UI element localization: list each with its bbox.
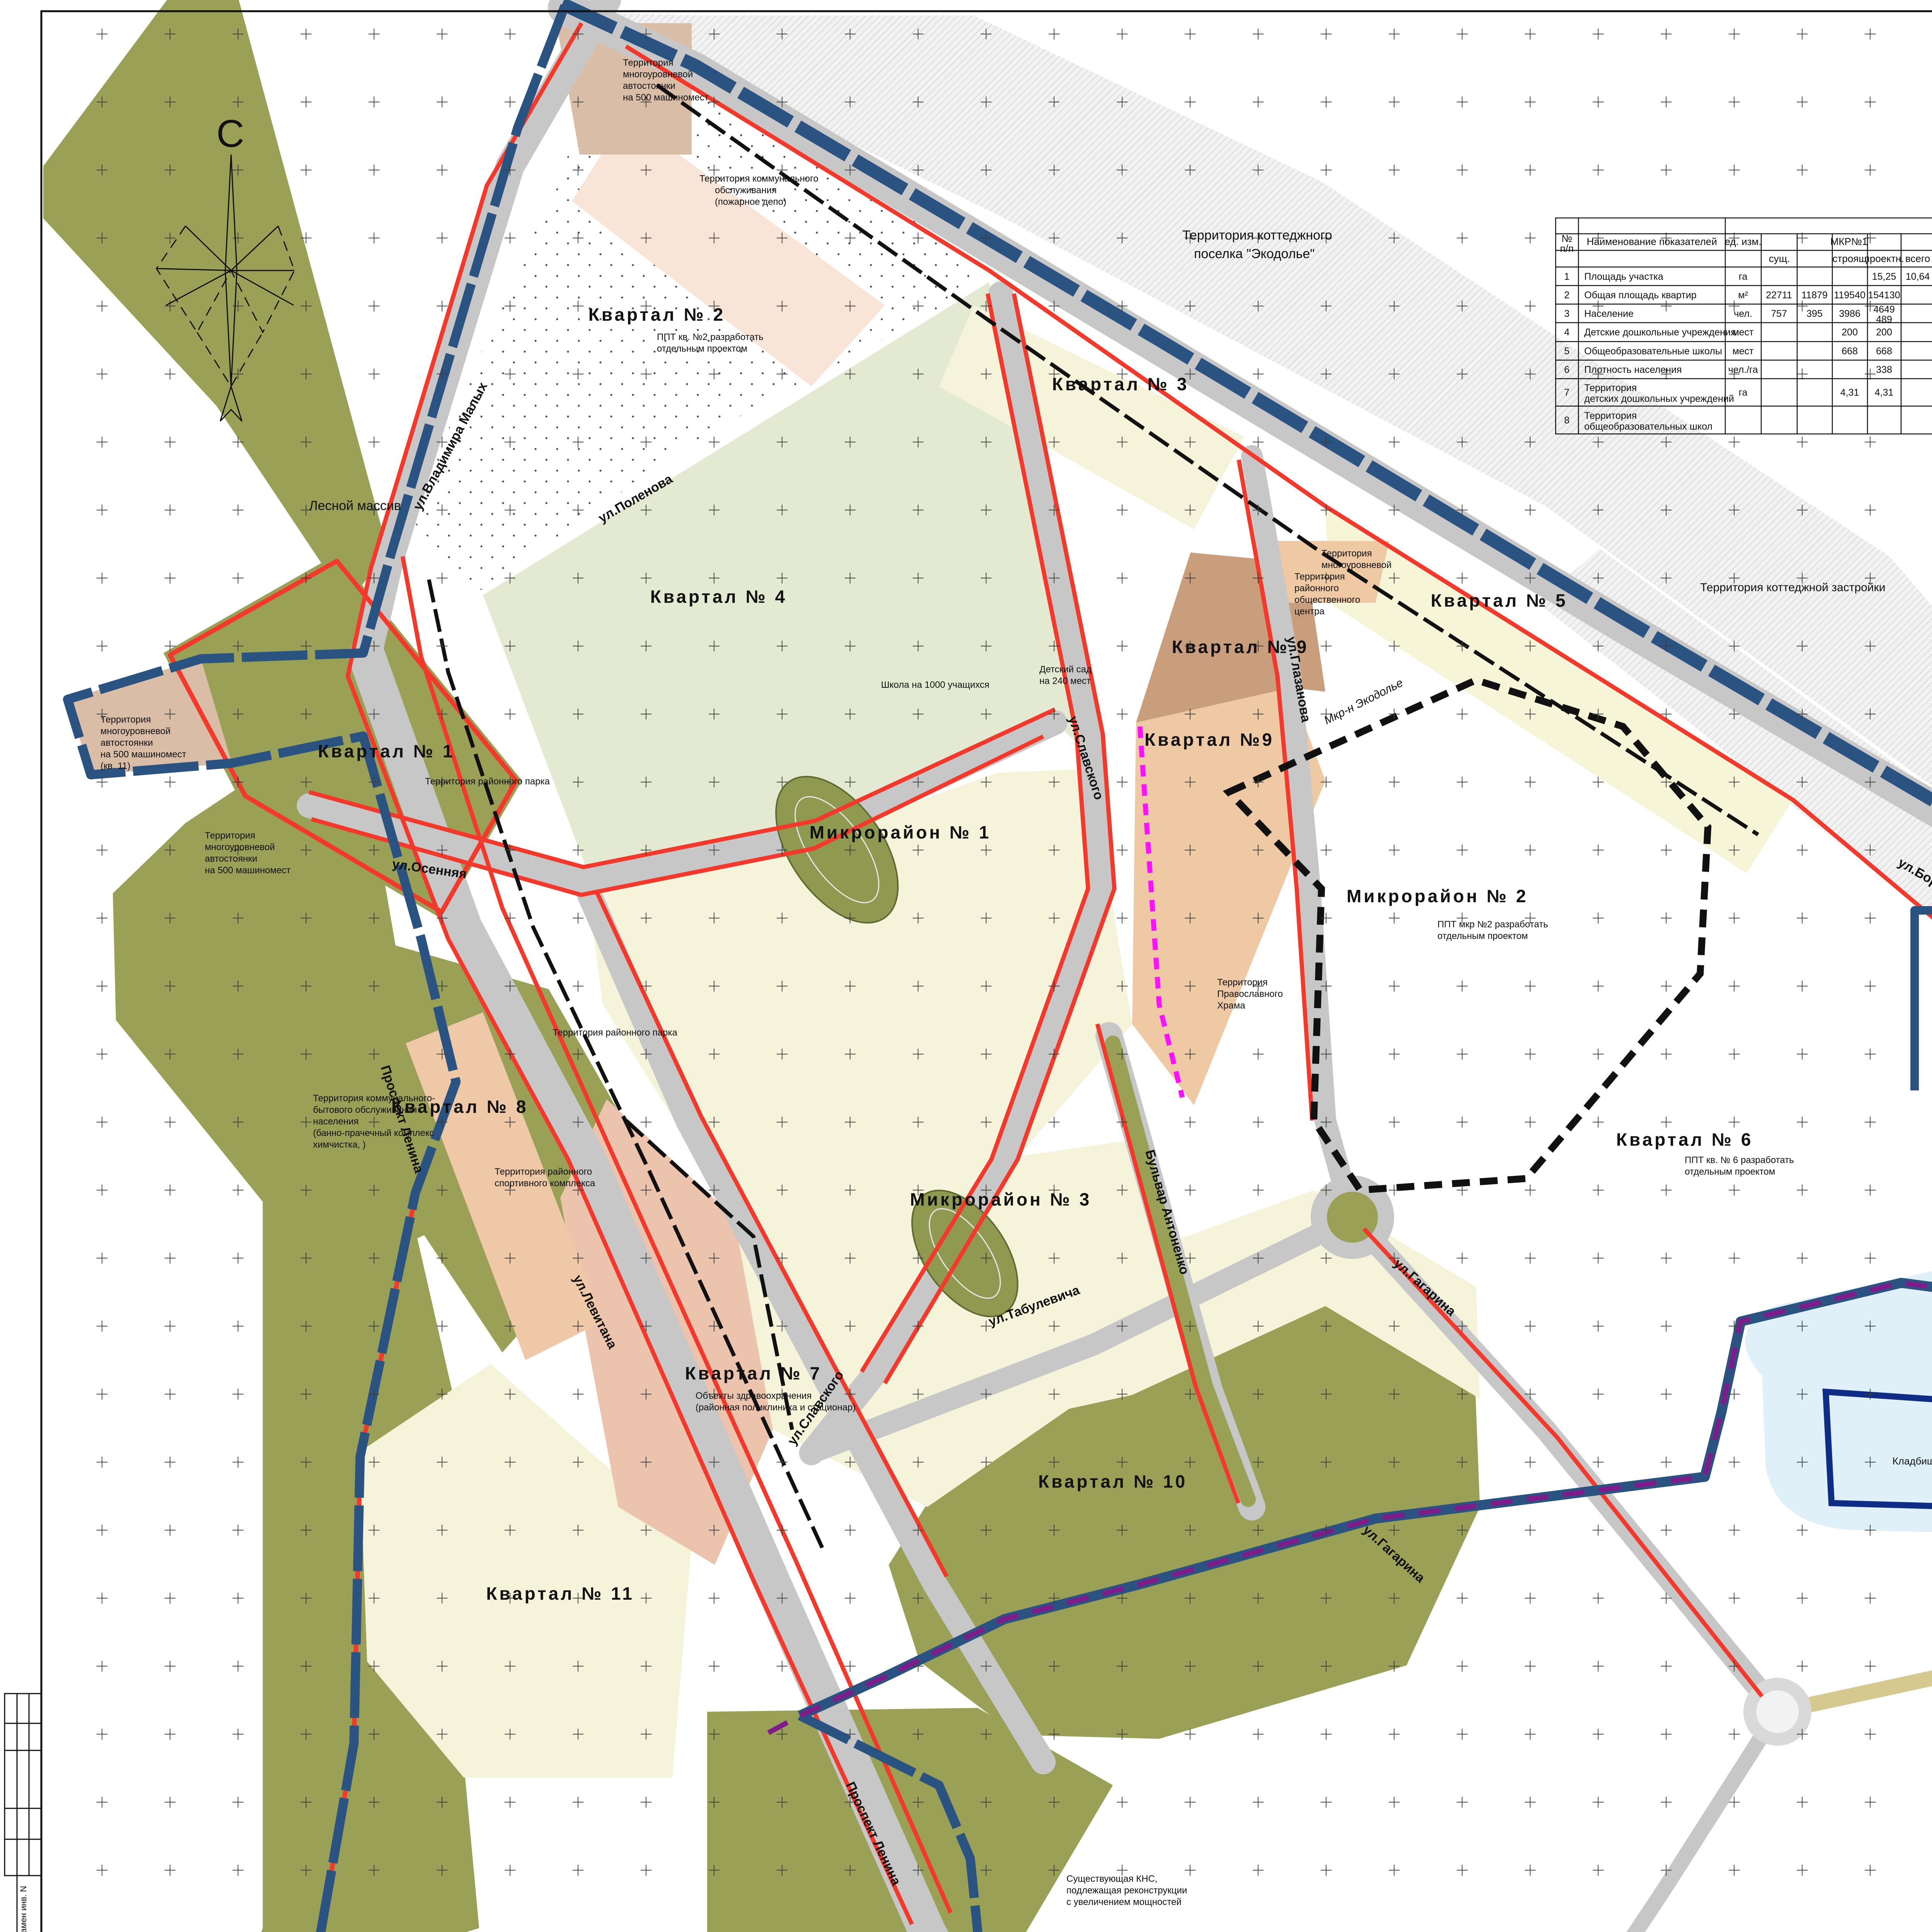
svg-text:районного: районного [1294,583,1339,594]
svg-text:спортивного комплекса: спортивного комплекса [495,1178,595,1189]
svg-text:многоуровневой: многоуровневой [205,842,275,852]
svg-text:(банно-прачечный комплекс: (банно-прачечный комплекс [313,1128,434,1138]
svg-text:668: 668 [1842,346,1858,357]
svg-text:С: С [216,112,244,155]
svg-text:Лесной массив: Лесной массив [309,498,401,513]
svg-text:15,25: 15,25 [1872,271,1896,282]
svg-text:119540: 119540 [1834,290,1866,301]
svg-text:Территория коттеджного: Территория коттеджного [1182,228,1332,243]
svg-text:на 500 машиномест: на 500 машиномест [205,865,291,876]
svg-text:Территория районного парка: Территория районного парка [425,776,550,787]
svg-text:395: 395 [1806,308,1823,319]
svg-text:200: 200 [1842,327,1858,338]
svg-text:Взамен инв. N: Взамен инв. N [19,1886,28,1932]
svg-text:489: 489 [1876,314,1892,325]
svg-text:мест: мест [1732,327,1754,338]
svg-text:Квартал № 3: Квартал № 3 [1052,374,1189,394]
svg-text:4649: 4649 [1873,304,1895,315]
svg-text:автостоянки: автостоянки [100,738,153,748]
svg-text:сущ.: сущ. [1769,253,1790,264]
svg-text:7: 7 [1564,387,1570,398]
svg-text:м²: м² [1738,290,1748,301]
svg-text:Общая площадь квартир: Общая площадь квартир [1584,290,1697,301]
svg-text:Территория: Территория [1584,410,1637,421]
svg-text:338: 338 [1876,364,1892,375]
svg-text:(кв. 11): (кв. 11) [100,761,130,771]
svg-text:Территория: Территория [205,830,255,841]
svg-text:автостоянки: автостоянки [205,854,257,864]
svg-text:4,31: 4,31 [1875,387,1894,398]
svg-text:5: 5 [1564,346,1570,357]
svg-text:га: га [1739,271,1748,282]
svg-text:757: 757 [1771,308,1787,319]
svg-text:11879: 11879 [1801,290,1828,301]
svg-text:мест: мест [1732,346,1754,357]
svg-text:(районная поликлиника и стацио: (районная поликлиника и стационар) [696,1402,856,1413]
svg-text:бытового обслуживания: бытового обслуживания [313,1105,417,1115]
svg-text:Территория: Территория [100,714,151,725]
svg-text:Квартал № 6: Квартал № 6 [1616,1129,1753,1150]
svg-text:Квартал № 1: Квартал № 1 [318,741,455,761]
svg-text:п/п: п/п [1560,243,1573,254]
svg-text:населения: населения [313,1116,359,1127]
svg-text:154130: 154130 [1868,290,1900,301]
svg-text:отдельным проектом: отдельным проектом [657,344,747,354]
svg-text:химчистка, ): химчистка, ) [313,1139,366,1150]
svg-text:га: га [1739,387,1748,398]
svg-text:8: 8 [1564,415,1570,426]
svg-text:Детский сад: Детский сад [1039,664,1092,675]
svg-text:ед. изм.: ед. изм. [1725,236,1761,247]
svg-text:Территория коттеджной застройк: Территория коттеджной застройки [1700,581,1885,594]
svg-text:Территория: Территория [1217,977,1268,988]
svg-text:проектн.: проектн. [1864,253,1904,264]
svg-text:многоуровневой: многоуровневой [1321,560,1391,570]
svg-text:Территория: Территория [1584,383,1637,393]
svg-text:Православного: Православного [1217,989,1283,999]
svg-text:на 500 машиномест: на 500 машиномест [100,749,186,760]
svg-text:общеобразовательных школ: общеобразовательных школ [1584,421,1713,432]
svg-text:обслуживания: обслуживания [715,185,777,196]
svg-text:Квартал №9: Квартал №9 [1145,730,1274,750]
svg-text:общественного: общественного [1294,595,1360,605]
svg-text:Микрорайон № 2: Микрорайон № 2 [1347,886,1528,906]
svg-text:2: 2 [1564,290,1570,301]
svg-text:чел./га: чел./га [1728,364,1758,375]
svg-text:подлежащая реконструкции: подлежащая реконструкции [1066,1885,1187,1896]
svg-text:Территория районного: Территория районного [495,1167,592,1177]
svg-text:чел.: чел. [1734,308,1752,319]
svg-text:автостоянки: автостоянки [623,81,675,91]
svg-text:Квартал № 7: Квартал № 7 [685,1363,822,1383]
svg-text:Микрорайон № 1: Микрорайон № 1 [810,822,991,842]
svg-text:Территория коммунального-: Территория коммунального- [313,1093,435,1104]
svg-text:Квартал № 4: Квартал № 4 [650,587,787,607]
svg-text:Существующая КНС,: Существующая КНС, [1066,1874,1157,1884]
svg-text:Плотность населения: Плотность населения [1584,364,1682,375]
svg-text:Квартал № 10: Квартал № 10 [1038,1471,1187,1492]
svg-text:Территория: Территория [623,58,673,68]
svg-text:3986: 3986 [1839,308,1861,319]
svg-text:Территория районного парка: Территория районного парка [553,1027,678,1038]
svg-text:Территория: Территория [1321,548,1372,559]
svg-text:Школа на 1000 учащихся: Школа на 1000 учащихся [881,680,990,690]
svg-text:МКР№1: МКР№1 [1830,236,1868,247]
svg-text:Население: Население [1584,308,1634,319]
svg-text:10,64: 10,64 [1906,271,1930,282]
svg-text:4,31: 4,31 [1840,387,1859,398]
svg-text:4: 4 [1564,327,1570,338]
svg-text:Площадь участка: Площадь участка [1584,271,1663,282]
svg-text:всего: всего [1905,253,1930,264]
svg-text:Объекты здравоохранения: Объекты здравоохранения [696,1391,812,1401]
svg-text:Квартал № 2: Квартал № 2 [588,304,726,325]
svg-text:Квартал № 5: Квартал № 5 [1431,590,1568,611]
svg-text:ППТ кв. №2 разработать: ППТ кв. №2 разработать [657,332,764,342]
svg-text:6: 6 [1564,364,1570,375]
svg-text:строящ: строящ [1832,253,1867,264]
svg-text:ППТ кв. № 6 разработать: ППТ кв. № 6 разработать [1685,1155,1794,1165]
svg-text:Территория коммунального: Территория коммунального [699,173,818,184]
svg-text:(пожарное депо): (пожарное депо) [715,197,786,207]
svg-text:Детские дошкольные учреждения: Детские дошкольные учреждения [1584,327,1736,338]
svg-text:на 240 мест: на 240 мест [1039,676,1091,686]
svg-text:на 500 машиномест: на 500 машиномест [623,92,709,103]
svg-text:отдельным проектом: отдельным проектом [1437,931,1528,941]
svg-text:многоуровневой: многоуровневой [100,726,170,736]
svg-text:200: 200 [1876,327,1892,338]
svg-text:Квартал № 11: Квартал № 11 [486,1583,634,1604]
svg-text:центра: центра [1294,606,1325,617]
svg-text:1: 1 [1564,271,1570,282]
svg-text:детских дошкольных учреждений: детских дошкольных учреждений [1584,393,1734,404]
svg-text:поселка "Экодолье": поселка "Экодолье" [1194,247,1315,261]
svg-text:отдельным проектом: отдельным проектом [1685,1167,1775,1177]
svg-text:Храма: Храма [1217,1000,1245,1011]
svg-text:Территория: Территория [1294,571,1345,582]
svg-text:22711: 22711 [1766,290,1792,301]
svg-text:с увеличением мощностей: с увеличением мощностей [1066,1897,1182,1907]
svg-text:Микрорайон № 3: Микрорайон № 3 [910,1189,1092,1209]
svg-text:668: 668 [1876,346,1892,357]
svg-text:Общеобразовательные школы: Общеобразовательные школы [1584,346,1722,357]
svg-text:3: 3 [1564,308,1570,319]
svg-text:ППТ мкр №2 разработать: ППТ мкр №2 разработать [1437,919,1548,930]
svg-text:многоуровневой: многоуровневой [623,69,693,80]
svg-text:Наименование показателей: Наименование показателей [1587,236,1717,247]
